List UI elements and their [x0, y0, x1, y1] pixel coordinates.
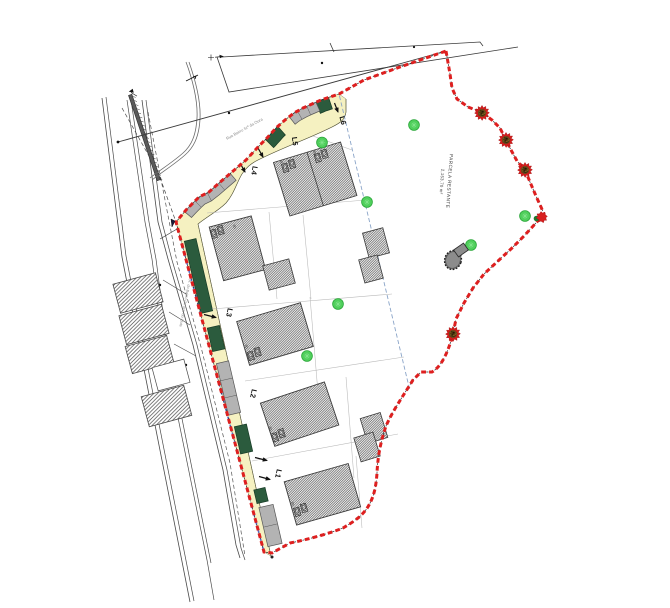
svg-text:L5: L5	[290, 136, 300, 146]
svg-text:L3: L3	[224, 307, 235, 317]
